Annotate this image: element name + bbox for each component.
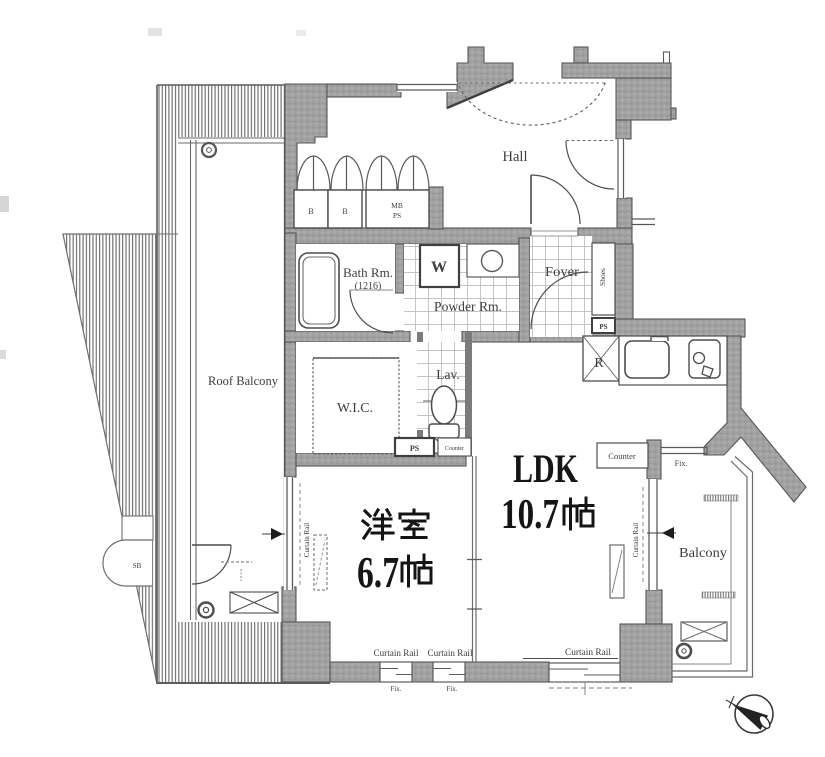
svg-text:SB: SB: [133, 562, 142, 570]
svg-text:B: B: [342, 207, 347, 216]
svg-text:W: W: [431, 259, 447, 276]
svg-text:Fix.: Fix.: [446, 685, 457, 693]
svg-text:10.7: 10.7: [501, 492, 559, 538]
svg-text:6.7: 6.7: [357, 548, 399, 597]
svg-text:Roof Balcony: Roof Balcony: [208, 374, 279, 388]
svg-text:PS: PS: [393, 211, 401, 220]
svg-text:Curtain Rail: Curtain Rail: [632, 523, 640, 557]
svg-text:Hall: Hall: [503, 149, 528, 165]
svg-text:Curtain Rail: Curtain Rail: [303, 523, 311, 557]
svg-text:Counter: Counter: [445, 446, 464, 452]
svg-text:B: B: [308, 207, 313, 216]
svg-text:PS: PS: [410, 444, 420, 453]
svg-text:LDK: LDK: [513, 446, 578, 491]
svg-text:Curtain Rail: Curtain Rail: [565, 648, 611, 658]
svg-text:Shoes: Shoes: [598, 268, 607, 286]
svg-text:Curtain Rail: Curtain Rail: [374, 648, 420, 658]
svg-text:Balcony: Balcony: [679, 545, 727, 560]
svg-text:MB: MB: [391, 201, 403, 210]
svg-text:Lav.: Lav.: [436, 367, 460, 382]
svg-text:PS: PS: [599, 323, 607, 331]
svg-text:Counter: Counter: [608, 451, 636, 461]
svg-text:Bath Rm.: Bath Rm.: [343, 265, 393, 280]
svg-text:Powder Rm.: Powder Rm.: [434, 299, 502, 314]
svg-text:R: R: [594, 356, 604, 371]
svg-text:Curtain Rail: Curtain Rail: [428, 648, 474, 658]
svg-text:Foyer: Foyer: [545, 265, 579, 280]
svg-text:Fix.: Fix.: [675, 459, 688, 468]
svg-text:W.I.C.: W.I.C.: [337, 400, 373, 415]
svg-text:Fix.: Fix.: [390, 685, 401, 693]
